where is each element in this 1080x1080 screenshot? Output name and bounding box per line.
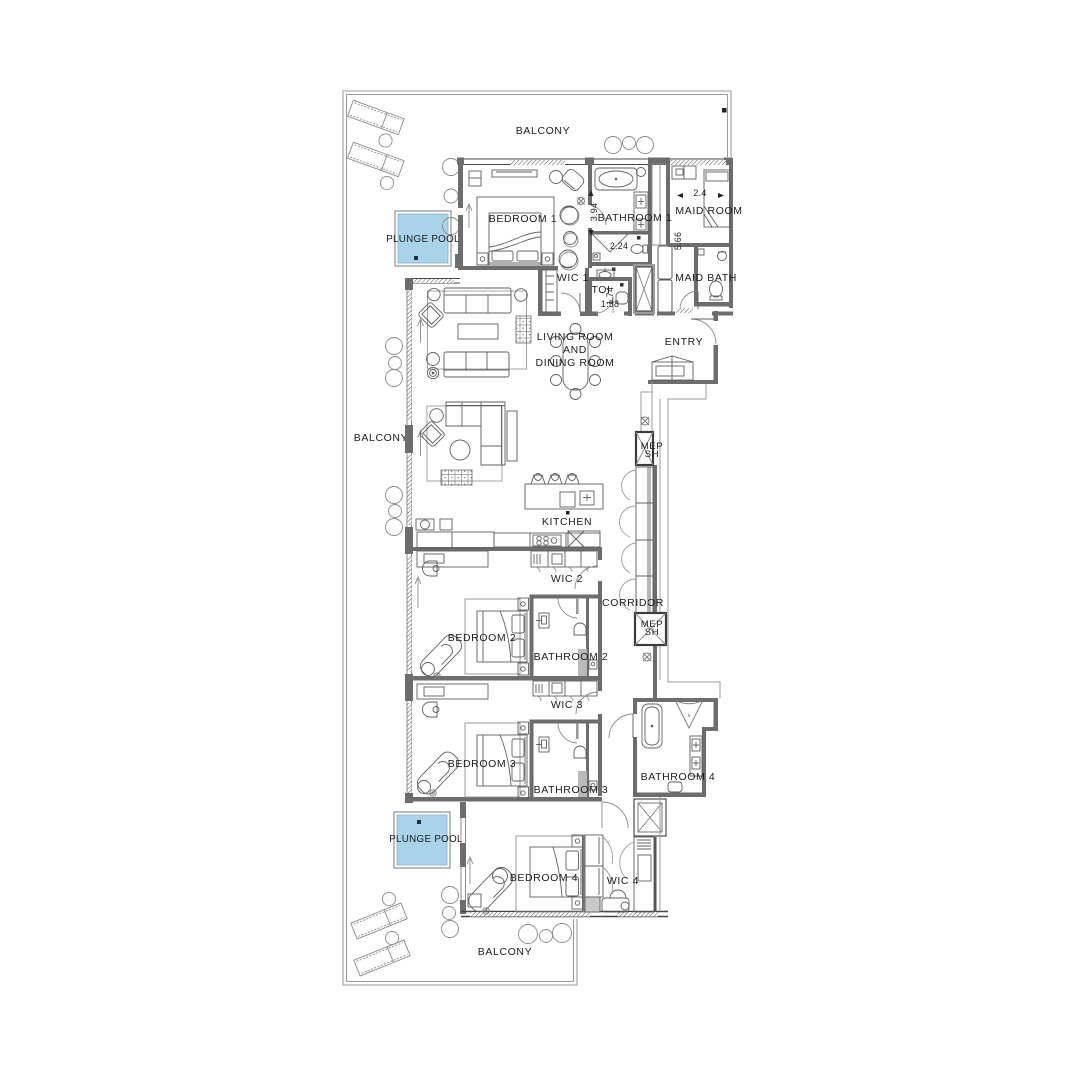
svg-text:BALCONY: BALCONY — [354, 432, 408, 444]
svg-text:BEDROOM 4: BEDROOM 4 — [510, 872, 578, 884]
svg-text:5.66: 5.66 — [673, 232, 683, 250]
svg-text:SH: SH — [645, 449, 659, 460]
svg-text:LIVING ROOM: LIVING ROOM — [537, 331, 614, 343]
svg-text:WIC 1: WIC 1 — [557, 272, 589, 284]
svg-text:KITCHEN: KITCHEN — [542, 516, 592, 528]
svg-text:SH: SH — [645, 627, 659, 638]
svg-text:BALCONY: BALCONY — [478, 946, 532, 958]
svg-text:BALCONY: BALCONY — [516, 125, 570, 137]
svg-text:BATHROOM 4: BATHROOM 4 — [641, 771, 716, 783]
svg-text:BEDROOM 2: BEDROOM 2 — [448, 632, 516, 644]
svg-text:BATHROOM 2: BATHROOM 2 — [534, 651, 609, 663]
svg-text:AND: AND — [563, 344, 587, 356]
svg-text:2.24: 2.24 — [610, 241, 628, 251]
svg-text:ENTRY: ENTRY — [665, 336, 703, 348]
svg-text:WIC 3: WIC 3 — [551, 699, 583, 711]
svg-text:BATHROOM 3: BATHROOM 3 — [534, 784, 609, 796]
svg-text:MAID ROOM: MAID ROOM — [675, 205, 742, 217]
svg-text:WIC 2: WIC 2 — [551, 573, 583, 585]
svg-text:PLUNGE POOL: PLUNGE POOL — [389, 834, 463, 845]
svg-text:WIC 4: WIC 4 — [607, 875, 639, 887]
svg-text:BATHROOM 1: BATHROOM 1 — [598, 212, 673, 224]
svg-text:CORRIDOR: CORRIDOR — [602, 597, 664, 609]
svg-text:PLUNGE POOL: PLUNGE POOL — [386, 234, 460, 245]
svg-text:MAID BATH: MAID BATH — [675, 272, 737, 284]
svg-text:DINING ROOM: DINING ROOM — [536, 357, 615, 369]
svg-text:2.4: 2.4 — [693, 188, 706, 198]
svg-text:3.94: 3.94 — [589, 203, 599, 221]
svg-text:BEDROOM 3: BEDROOM 3 — [448, 758, 516, 770]
svg-text:1.58: 1.58 — [601, 299, 619, 309]
svg-text:BEDROOM 1: BEDROOM 1 — [489, 213, 557, 225]
